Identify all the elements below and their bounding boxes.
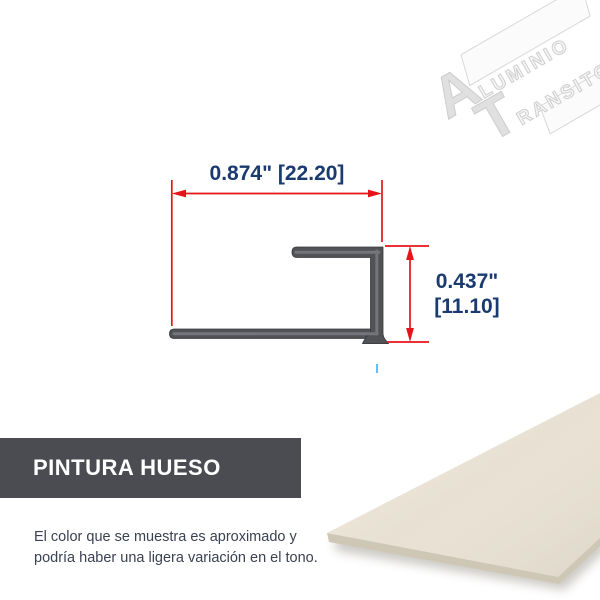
dimension-lines: [172, 180, 429, 342]
disclaimer-line-2: podría haber una ligera variación en el …: [34, 548, 318, 569]
disclaimer-line-1: El color que se muestra es aproximado y: [34, 527, 318, 548]
arrowhead-right: [368, 190, 382, 198]
color-swatch-plank: [327, 393, 600, 590]
width-dimension-label: 0.874" [22.20]: [167, 161, 387, 186]
height-dimension-label: 0.437" [11.10]: [425, 269, 509, 319]
finish-banner: PINTURA HUESO: [0, 438, 301, 498]
profile-extrusion-highlights: [174, 251, 379, 334]
arrowhead-left: [172, 190, 186, 198]
profile-cross-section: [170, 247, 389, 344]
height-dimension-inches: 0.437": [425, 269, 509, 294]
product-sheet: A LUMINIO T RANSITO ®: [0, 0, 600, 600]
height-dimension-mm: [11.10]: [425, 294, 509, 319]
finish-name-label: PINTURA HUESO: [0, 455, 221, 481]
arrowhead-up: [406, 246, 414, 260]
technical-drawing-canvas: [0, 0, 600, 600]
arrowhead-down: [406, 328, 414, 342]
color-disclaimer: El color que se muestra es aproximado y …: [34, 527, 318, 568]
